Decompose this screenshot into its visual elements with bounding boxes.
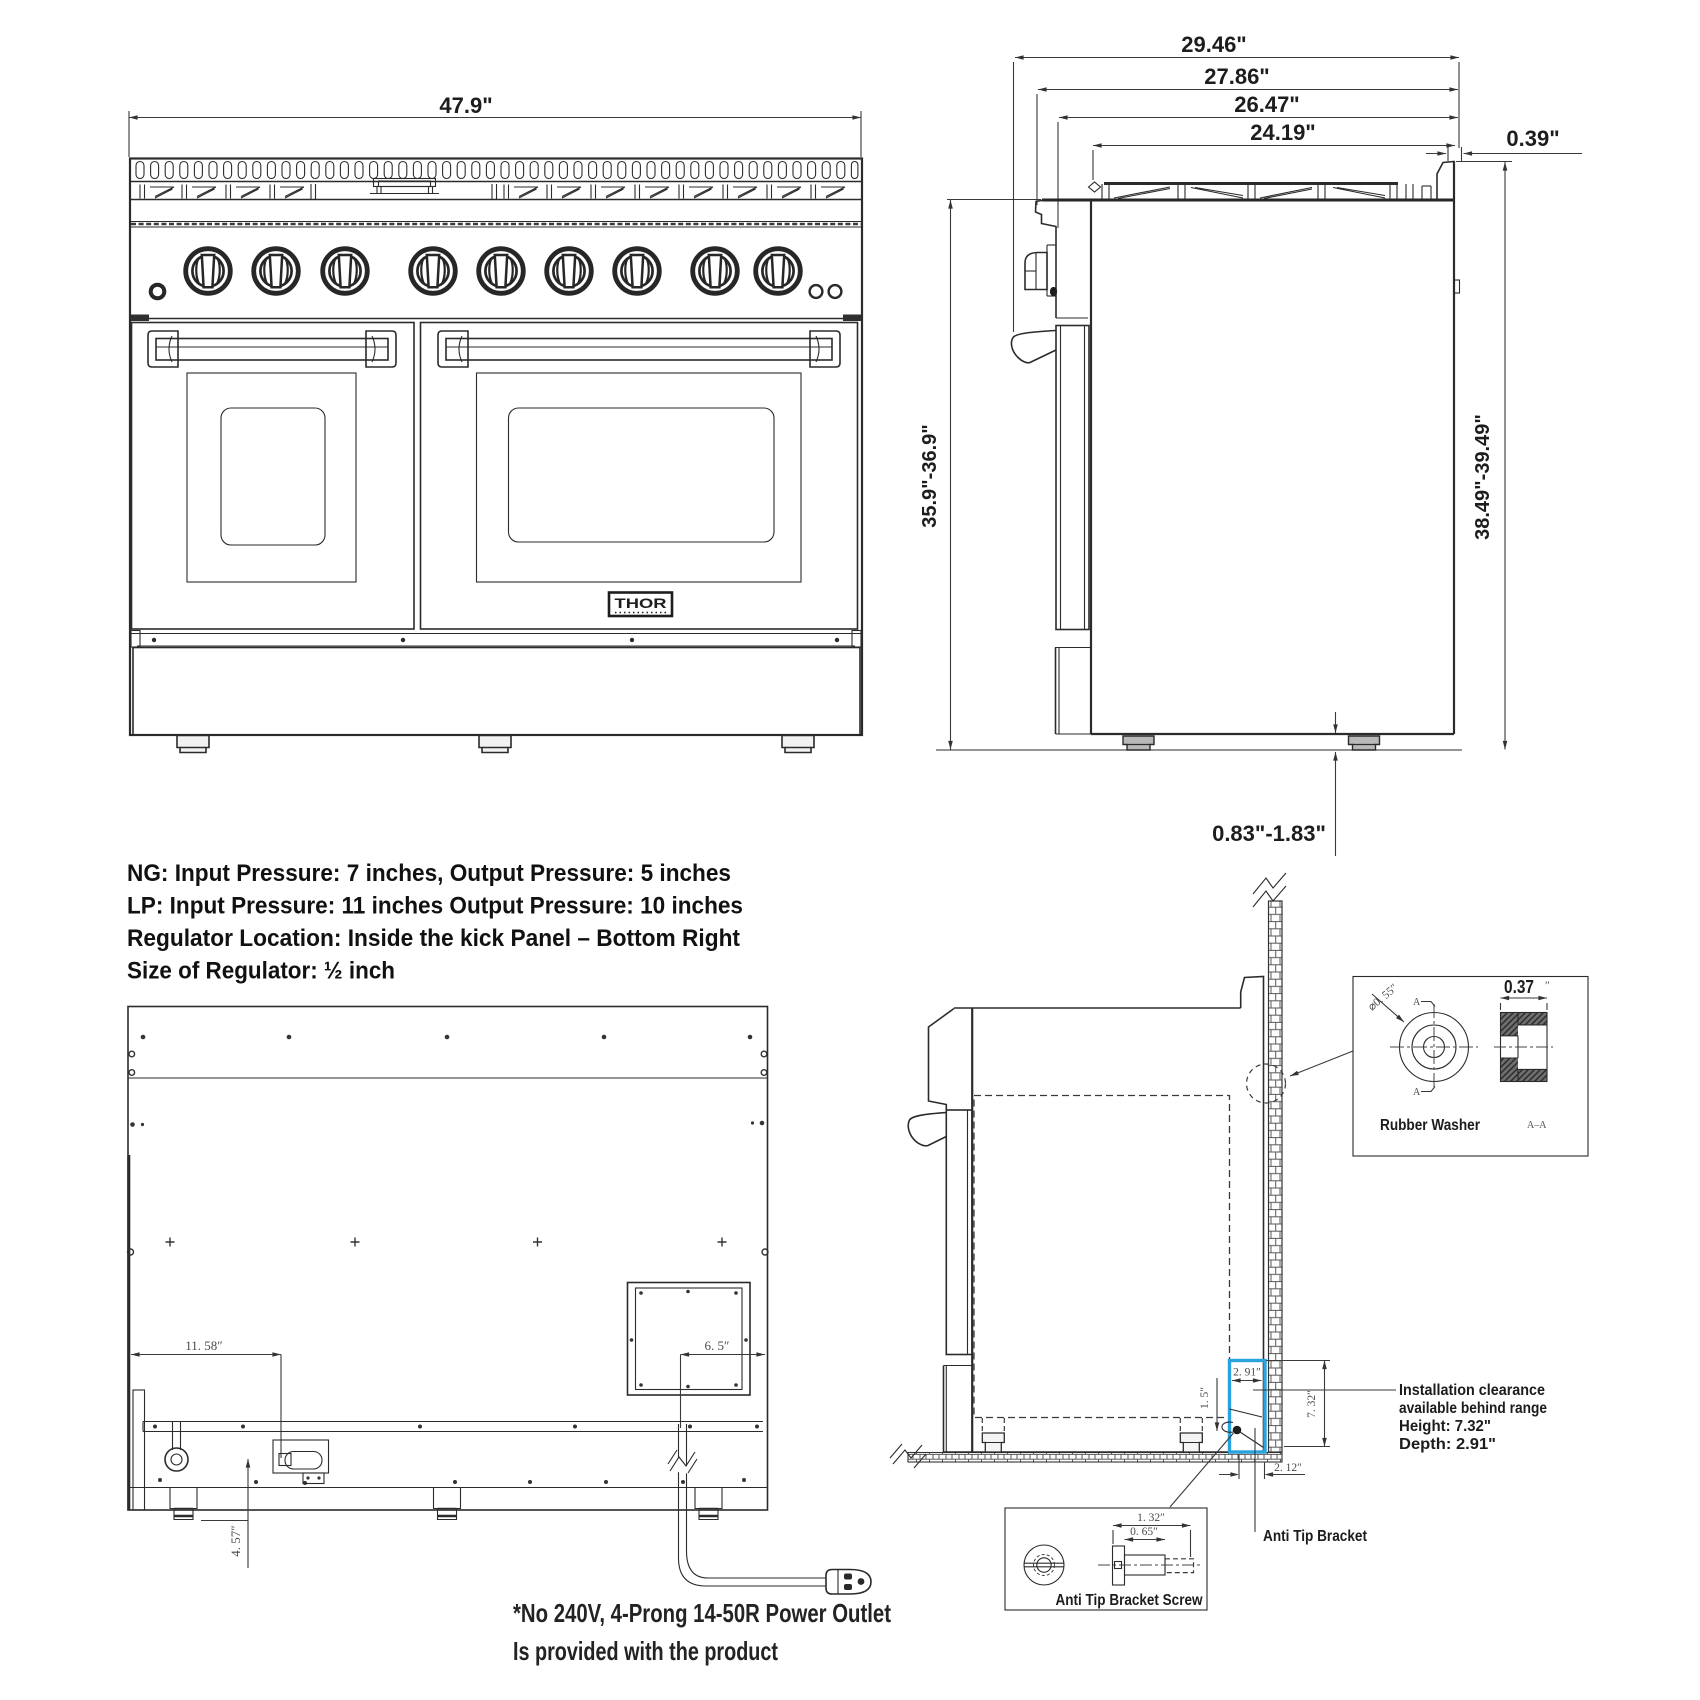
svg-text:Anti Tip Bracket Screw: Anti Tip Bracket Screw xyxy=(1056,1592,1203,1609)
svg-text:4. 57″: 4. 57″ xyxy=(228,1525,243,1556)
svg-text:Rubber Washer: Rubber Washer xyxy=(1380,1117,1480,1134)
svg-text:11. 58″: 11. 58″ xyxy=(185,1338,222,1353)
svg-text:A: A xyxy=(1413,1087,1421,1098)
svg-text:″: ″ xyxy=(1545,980,1550,992)
svg-text:Depth: 2.91": Depth: 2.91" xyxy=(1399,1436,1496,1453)
svg-text:NG: Input Pressure: 7 inches,: NG: Input Pressure: 7 inches, Output Pre… xyxy=(127,860,731,887)
svg-text:2. 91″: 2. 91″ xyxy=(1233,1367,1261,1379)
svg-text:26.47": 26.47" xyxy=(1234,92,1299,117)
svg-text:38.49"-39.49": 38.49"-39.49" xyxy=(1472,414,1494,540)
svg-text:Size of Regulator: ½ inch: Size of Regulator: ½ inch xyxy=(127,958,395,985)
svg-text:Height: 7.32": Height: 7.32" xyxy=(1399,1418,1491,1435)
svg-text:24.19": 24.19" xyxy=(1250,120,1315,145)
svg-text:0.37: 0.37 xyxy=(1504,977,1534,997)
svg-text:*No 240V, 4-Prong 14-50R Power: *No 240V, 4-Prong 14-50R Power Outlet xyxy=(513,1598,891,1628)
svg-text:1. 32″: 1. 32″ xyxy=(1137,1512,1165,1524)
svg-text:0. 65″: 0. 65″ xyxy=(1130,1526,1158,1538)
svg-text:27.86": 27.86" xyxy=(1204,64,1269,89)
svg-text:35.9"-36.9": 35.9"-36.9" xyxy=(919,424,941,527)
svg-text:A: A xyxy=(1413,997,1421,1008)
svg-text:47.9": 47.9" xyxy=(439,93,492,118)
svg-text:Is provided with the product: Is provided with the product xyxy=(513,1636,778,1666)
svg-text:available behind range: available behind range xyxy=(1399,1400,1547,1417)
svg-text:Installation clearance: Installation clearance xyxy=(1399,1382,1545,1399)
svg-text:0.39": 0.39" xyxy=(1506,126,1559,151)
svg-text:THOR: THOR xyxy=(615,595,667,611)
svg-text:0.83"-1.83": 0.83"-1.83" xyxy=(1212,821,1326,846)
svg-text:2. 12″: 2. 12″ xyxy=(1274,1462,1302,1474)
svg-text:6. 5″: 6. 5″ xyxy=(705,1338,730,1353)
svg-text:A–A: A–A xyxy=(1527,1120,1547,1131)
svg-text:Anti Tip Bracket: Anti Tip Bracket xyxy=(1263,1528,1368,1545)
svg-text:LP: Input Pressure: 11 inches: LP: Input Pressure: 11 inches Output Pre… xyxy=(127,893,743,920)
svg-text:29.46": 29.46" xyxy=(1181,32,1246,57)
svg-text:Regulator Location: Inside the: Regulator Location: Inside the kick Pane… xyxy=(127,925,740,952)
svg-text:7. 32″: 7. 32″ xyxy=(1306,1390,1318,1418)
svg-text:1. 5″: 1. 5″ xyxy=(1199,1387,1211,1409)
